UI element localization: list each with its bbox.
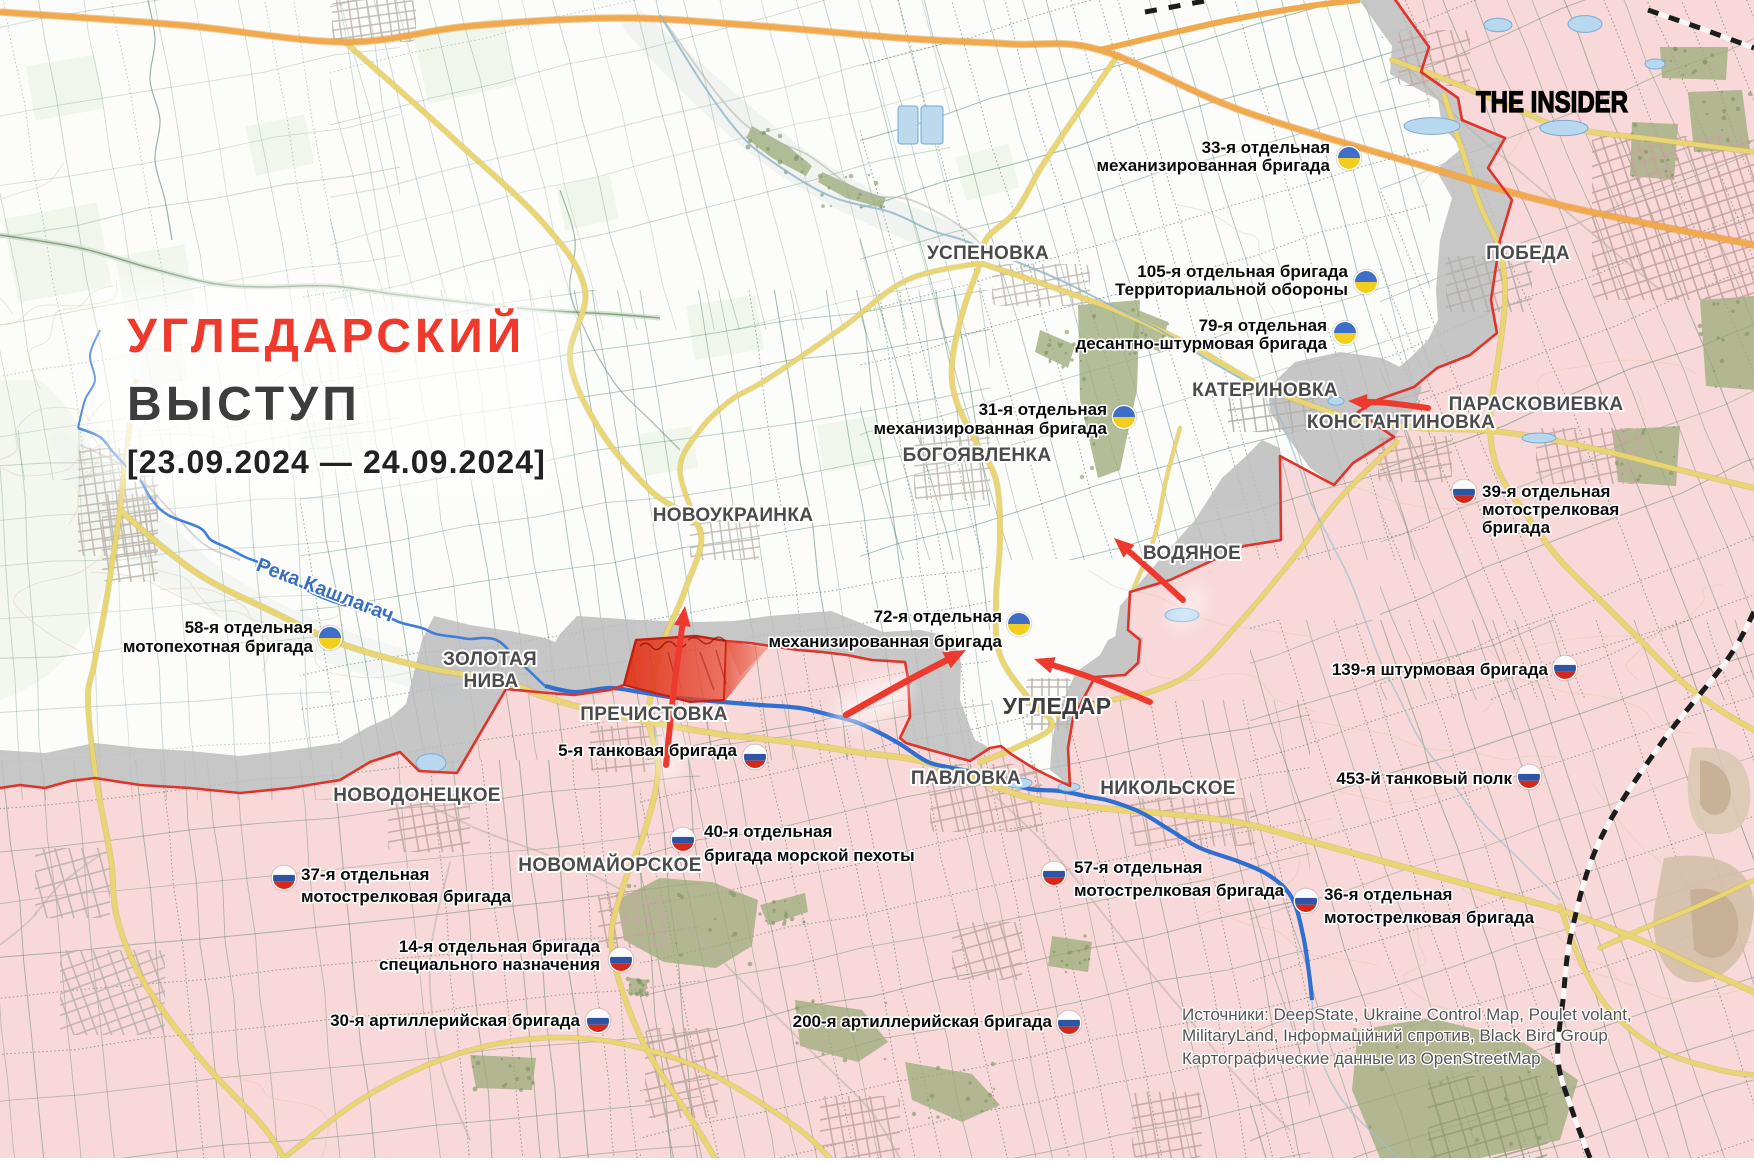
svg-text:механизированная бригада: механизированная бригада (1096, 156, 1330, 175)
svg-text:НИВА: НИВА (463, 671, 518, 692)
svg-text:мотострелковая бригада: мотострелковая бригада (1324, 908, 1535, 927)
svg-text:139-я штурмовая бригада: 139-я штурмовая бригада (1332, 660, 1549, 679)
svg-text:механизированная бригада: механизированная бригада (873, 419, 1107, 438)
svg-text:мотострелковая бригада: мотострелковая бригада (301, 887, 512, 906)
svg-text:НОВОДОНЕЦКОЕ: НОВОДОНЕЦКОЕ (333, 785, 501, 806)
svg-text:НОВОУКРАИНКА: НОВОУКРАИНКА (653, 505, 814, 526)
svg-text:мотопехотная бригада: мотопехотная бригада (123, 637, 314, 656)
svg-text:40-я отдельная: 40-я отдельная (704, 822, 832, 841)
svg-text:ВОДЯНОЕ: ВОДЯНОЕ (1143, 543, 1241, 564)
svg-text:мотострелковая: мотострелковая (1482, 500, 1619, 519)
svg-text:Территориальной обороны: Территориальной обороны (1115, 280, 1348, 299)
svg-text:72-я отдельная: 72-я отдельная (874, 607, 1002, 626)
svg-text:33-я отдельная: 33-я отдельная (1202, 138, 1330, 157)
svg-text:31-я отдельная: 31-я отдельная (979, 400, 1107, 419)
svg-text:КАТЕРИНОВКА: КАТЕРИНОВКА (1192, 380, 1338, 401)
svg-text:453-й танковый полк: 453-й танковый полк (1336, 769, 1512, 788)
svg-text:специального назначения: специального назначения (379, 955, 600, 974)
svg-text:14-я отдельная бригада: 14-я отдельная бригада (399, 937, 601, 956)
svg-text:36-я отдельная: 36-я отдельная (1324, 885, 1452, 904)
svg-text:200-я артиллерийская бригада: 200-я артиллерийская бригада (793, 1012, 1053, 1031)
svg-text:БОГОЯВЛЕНКА: БОГОЯВЛЕНКА (903, 445, 1052, 466)
svg-text:5-я танковая бригада: 5-я танковая бригада (558, 741, 737, 760)
svg-text:Картографические данные из Ope: Картографические данные из OpenStreetMap (1182, 1049, 1541, 1068)
svg-text:КОНСТАНТИНОВКА: КОНСТАНТИНОВКА (1307, 412, 1495, 433)
svg-text:НОВОМАЙОРСКОЕ: НОВОМАЙОРСКОЕ (518, 854, 701, 876)
svg-text:58-я отдельная: 58-я отдельная (185, 618, 313, 637)
svg-text:ПАРАСКОВИЕВКА: ПАРАСКОВИЕВКА (1449, 394, 1624, 415)
svg-text:MilitaryLand, Інформаційний сп: MilitaryLand, Інформаційний спротив, Bla… (1182, 1026, 1608, 1045)
svg-text:THE INSIDER: THE INSIDER (1476, 86, 1628, 119)
svg-text:мотострелковая бригада: мотострелковая бригада (1074, 881, 1285, 900)
svg-text:десантно-штурмовая бригада: десантно-штурмовая бригада (1075, 334, 1327, 353)
svg-text:бригада морской пехоты: бригада морской пехоты (704, 846, 915, 865)
svg-text:57-я отдельная: 57-я отдельная (1074, 858, 1202, 877)
svg-text:ВЫСТУП: ВЫСТУП (127, 378, 361, 431)
svg-text:ПАВЛОВКА: ПАВЛОВКА (911, 768, 1021, 789)
svg-text:30-я артиллерийская бригада: 30-я артиллерийская бригада (330, 1011, 580, 1030)
svg-text:ЗОЛОТАЯ: ЗОЛОТАЯ (443, 649, 537, 670)
svg-text:УГЛЕДАРСКИЙ: УГЛЕДАРСКИЙ (127, 308, 525, 363)
svg-text:ПОБЕДА: ПОБЕДА (1486, 243, 1570, 264)
svg-text:105-я отдельная бригада: 105-я отдельная бригада (1137, 262, 1348, 281)
svg-text:39-я отдельная: 39-я отдельная (1482, 482, 1610, 501)
svg-text:37-я отдельная: 37-я отдельная (301, 865, 429, 884)
svg-text:УГЛЕДАР: УГЛЕДАР (1003, 693, 1112, 719)
svg-text:механизированная бригада: механизированная бригада (768, 632, 1002, 651)
svg-text:бригада: бригада (1482, 518, 1551, 537)
svg-text:79-я отдельная: 79-я отдельная (1199, 316, 1327, 335)
svg-text:Источники: DeepState, Ukraine: Источники: DeepState, Ukraine Control Ma… (1182, 1005, 1632, 1024)
svg-text:ПРЕЧИСТОВКА: ПРЕЧИСТОВКА (580, 704, 728, 725)
svg-text:НИКОЛЬСКОЕ: НИКОЛЬСКОЕ (1100, 778, 1236, 799)
svg-text:УСПЕНОВКА: УСПЕНОВКА (927, 243, 1049, 264)
svg-text:[23.09.2024 — 24.09.2024]: [23.09.2024 — 24.09.2024] (127, 444, 546, 480)
